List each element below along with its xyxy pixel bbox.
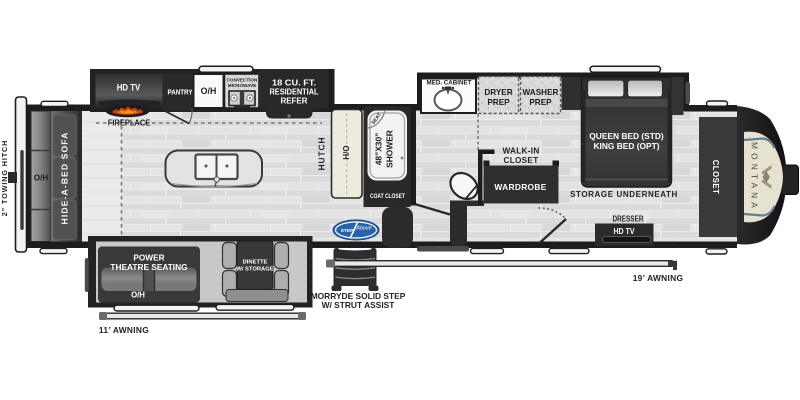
svg-text:REFER: REFER (281, 97, 308, 106)
svg-text:DRESSER: DRESSER (613, 215, 644, 224)
svg-text:11’ AWNING: 11’ AWNING (99, 325, 149, 335)
svg-text:HD TV: HD TV (614, 227, 636, 236)
svg-text:2” TOWING HITCH: 2” TOWING HITCH (0, 140, 9, 216)
svg-text:DRYER: DRYER (484, 88, 512, 97)
svg-text:FIREPLACE: FIREPLACE (108, 118, 151, 128)
svg-text:HD TV: HD TV (117, 83, 141, 93)
svg-text:COAT CLOSET: COAT CLOSET (370, 193, 405, 200)
svg-text:HUTCH: HUTCH (317, 137, 327, 171)
svg-text:SHOWER: SHOWER (385, 130, 395, 168)
svg-text:O/H: O/H (131, 291, 145, 300)
svg-text:48”X30”: 48”X30” (374, 133, 384, 166)
svg-text:STORAGE UNDERNEATH: STORAGE UNDERNEATH (570, 190, 678, 199)
svg-text:MICROWAVE: MICROWAVE (228, 83, 257, 88)
svg-text:19’ AWNING: 19’ AWNING (633, 273, 684, 283)
svg-text:KING BED (OPT): KING BED (OPT) (593, 141, 659, 151)
svg-text:STEP: STEP (341, 228, 355, 234)
svg-text:WASHER: WASHER (523, 88, 559, 97)
svg-text:DINETTE: DINETTE (243, 260, 268, 266)
svg-text:WALK-IN: WALK-IN (502, 147, 539, 156)
svg-text:Above: Above (355, 226, 371, 232)
svg-text:18 CU. FT.: 18 CU. FT. (272, 79, 316, 88)
svg-text:CLOSET: CLOSET (711, 160, 720, 195)
svg-text:O/H: O/H (201, 86, 217, 96)
svg-text:HIDE-A-BED SOFA: HIDE-A-BED SOFA (60, 132, 70, 225)
svg-text:POWER: POWER (133, 253, 164, 263)
svg-text:WARDROBE: WARDROBE (494, 182, 546, 192)
svg-text:THEATRE SEATING: THEATRE SEATING (110, 262, 187, 272)
svg-text:MONTANA: MONTANA (750, 142, 760, 212)
svg-text:PREP: PREP (529, 98, 552, 107)
svg-text:CONVECTION: CONVECTION (227, 78, 258, 83)
svg-text:MED. CABINET: MED. CABINET (427, 80, 473, 87)
svg-text:W/ STORAGE: W/ STORAGE (236, 267, 273, 273)
svg-text:W/ STRUT ASSIST: W/ STRUT ASSIST (322, 300, 396, 310)
svg-text:PANTRY: PANTRY (168, 88, 193, 97)
svg-text:H/O: H/O (342, 145, 351, 159)
svg-text:RESIDENTIAL: RESIDENTIAL (270, 88, 319, 97)
svg-text:PREP: PREP (487, 98, 510, 107)
svg-text:QUEEN BED (STD): QUEEN BED (STD) (589, 131, 664, 141)
svg-text:CLOSET: CLOSET (503, 156, 538, 165)
svg-text:O/H: O/H (34, 174, 48, 183)
